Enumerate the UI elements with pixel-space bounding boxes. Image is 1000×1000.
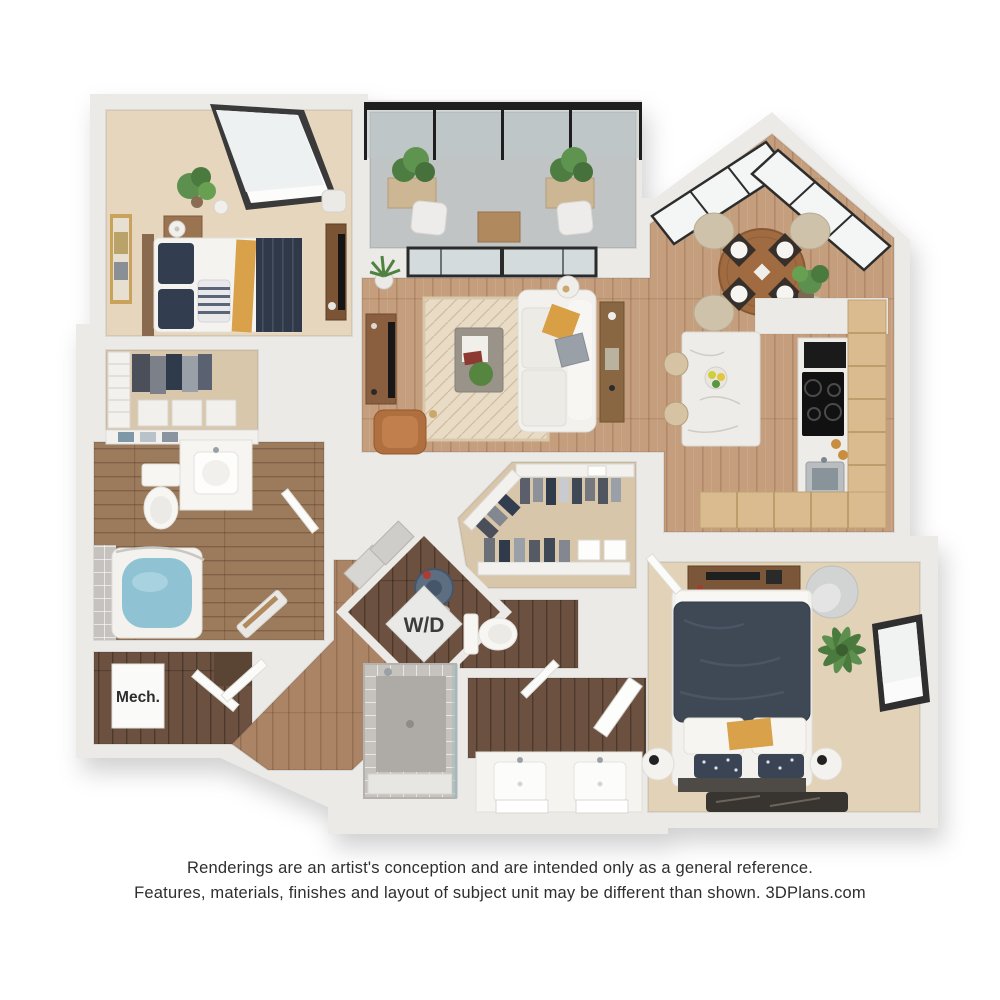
lamp-right <box>817 755 827 765</box>
bedroom2-armchair <box>805 566 858 618</box>
sofa-pillow-gray <box>555 333 589 367</box>
bedroom2-bed <box>672 590 812 792</box>
shower-drain <box>406 720 414 728</box>
bedroom1-tv <box>338 234 345 310</box>
balcony-table <box>478 212 520 242</box>
bedroom1-art-frame <box>110 214 132 304</box>
sofa <box>518 290 596 432</box>
fruit-bowl <box>712 380 720 388</box>
shower-head <box>384 668 392 676</box>
bedroom1-accent-chair <box>322 190 346 212</box>
flowers <box>328 302 336 310</box>
living-tv-console <box>366 314 396 404</box>
pillow-patterned-2 <box>758 754 804 778</box>
mech-label-text: Mech. <box>116 689 160 706</box>
living-tv <box>388 322 395 398</box>
oven <box>804 342 846 368</box>
seat-cushion-2 <box>522 370 566 426</box>
mech-label: Mech. <box>112 664 164 728</box>
wd-label-text: W/D <box>404 614 445 637</box>
closet-bottom-shelf <box>478 538 630 575</box>
bath1-vanity <box>180 440 252 510</box>
bedroom1-tv-console <box>326 224 346 320</box>
sofa-console-table <box>600 302 624 422</box>
stool-2 <box>664 402 688 426</box>
cooktop <box>802 372 844 436</box>
navy-duvet <box>674 602 810 722</box>
nightstand-left <box>642 748 674 780</box>
balcony-chair-right <box>556 200 593 235</box>
closet1-baskets <box>138 400 236 426</box>
headboard <box>142 234 154 336</box>
bedroom1-bed <box>142 234 302 336</box>
pillow-patterned-1 <box>694 754 742 778</box>
storage-box <box>588 466 606 476</box>
foot-bench <box>678 778 806 792</box>
balcony-sliding-door <box>408 248 596 276</box>
disclaimer-line2: Features, materials, finishes and layout… <box>0 881 1000 906</box>
pillow-striped <box>198 280 230 322</box>
stool-1 <box>664 352 688 376</box>
kitchen-sink <box>806 457 844 496</box>
table-plant <box>469 362 493 386</box>
bedroom2-rug <box>706 792 848 812</box>
bath1-tub <box>112 548 204 639</box>
pillow-navy-2 <box>158 289 194 329</box>
kitchen-cabinets-right <box>848 300 886 500</box>
pillow-navy-1 <box>158 243 194 284</box>
vanity-mirror-2 <box>576 800 628 813</box>
double-vanity <box>476 752 642 813</box>
shower-glass <box>452 664 458 798</box>
disclaimer-line1: Renderings are an artist's conception an… <box>0 856 1000 881</box>
bedroom2-window <box>872 614 930 712</box>
disclaimer: Renderings are an artist's conception an… <box>0 856 1000 906</box>
faucet <box>213 447 219 453</box>
vanity-mirror-1 <box>496 800 548 813</box>
gold-lamp <box>429 410 437 418</box>
bed-runner-navy <box>256 238 302 332</box>
nightstand-right <box>810 748 842 780</box>
hanging-clothes <box>132 354 212 394</box>
toilet2-tank <box>464 614 478 654</box>
floor-lamp <box>557 276 579 298</box>
closet-top-shelf <box>516 464 634 505</box>
kitchen-counter <box>798 338 848 500</box>
floor-plan-rendering: Mech. W/D <box>0 0 1000 1000</box>
bath1-toilet <box>142 464 180 529</box>
shower-bench <box>368 774 452 794</box>
kitchen-peninsula <box>700 492 886 528</box>
vase <box>214 200 228 214</box>
walkin-shower <box>364 664 458 798</box>
coffee-table <box>455 328 503 392</box>
pillow-mustard <box>727 718 774 750</box>
floor-plan-page: Mech. W/D <box>0 0 1000 1000</box>
lamp-left <box>649 755 659 765</box>
balcony-chair-left <box>410 200 447 235</box>
